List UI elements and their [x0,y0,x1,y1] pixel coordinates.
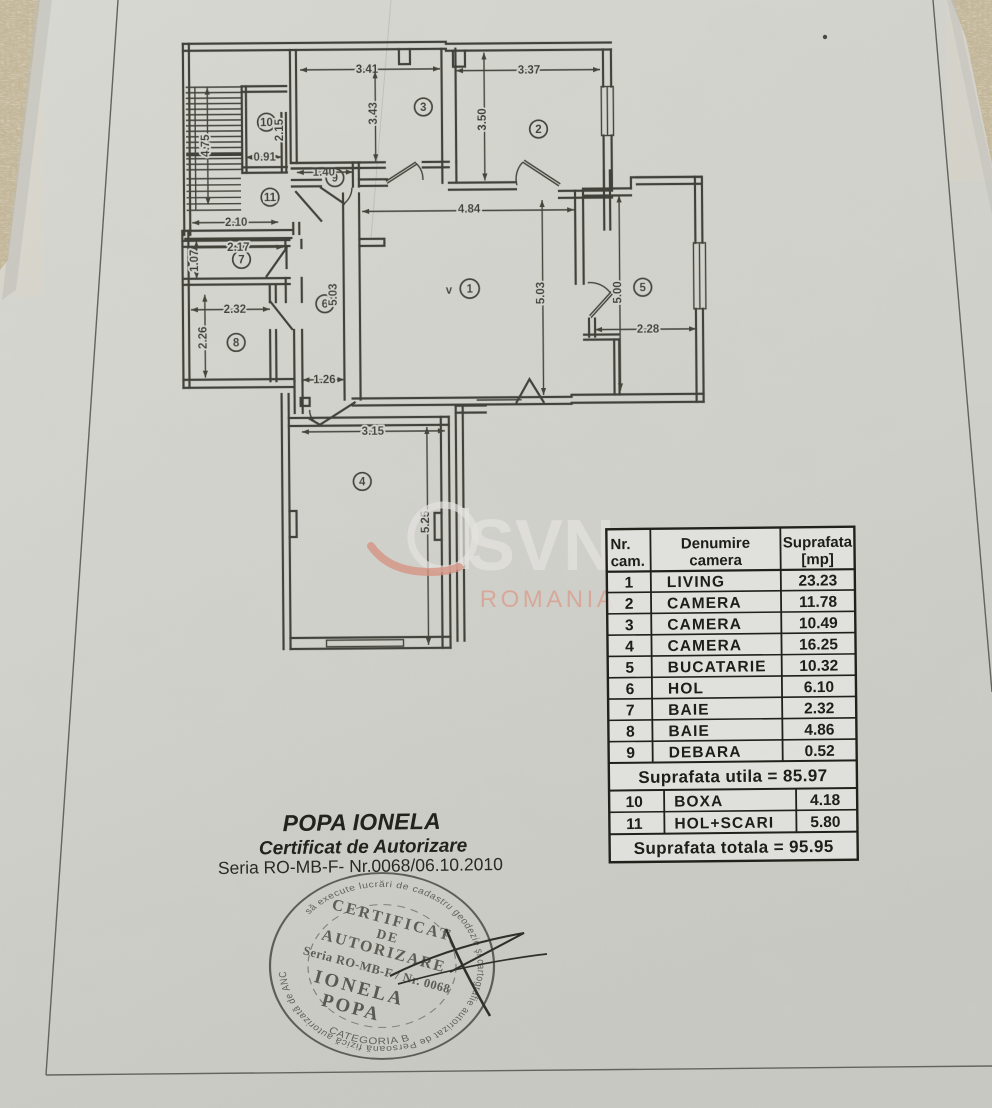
svg-text:10.32: 10.32 [799,658,838,675]
svg-text:6.10: 6.10 [804,679,834,696]
svg-text:BAIE: BAIE [668,723,710,740]
svg-text:10: 10 [625,794,642,811]
svg-text:HOL: HOL [668,680,704,697]
svg-text:Nr.: Nr. [610,536,630,553]
svg-text:16.25: 16.25 [799,636,838,653]
svg-text:BUCATARIE: BUCATARIE [668,658,767,676]
svg-text:2.32: 2.32 [804,700,834,717]
svg-text:4.86: 4.86 [804,722,835,739]
svg-text:camera: camera [689,552,742,570]
svg-text:BAIE: BAIE [668,702,710,719]
svg-text:LIVING: LIVING [667,574,725,592]
svg-text:7: 7 [626,702,635,719]
svg-text:23.23: 23.23 [798,572,837,589]
svg-text:8: 8 [626,724,635,741]
svg-text:DEBARA: DEBARA [669,744,742,762]
svg-text:0.52: 0.52 [804,743,834,760]
svg-text:4: 4 [625,638,634,655]
svg-text:9: 9 [626,745,635,762]
svg-text:HOL+SCARI: HOL+SCARI [674,815,774,833]
svg-text:11: 11 [626,816,643,833]
svg-text:4.18: 4.18 [810,792,841,809]
svg-text:10.49: 10.49 [799,615,838,632]
svg-text:CAMERA: CAMERA [667,637,742,655]
svg-text:POPA IONELA: POPA IONELA [283,808,441,836]
svg-text:Suprafata totala = 95.95: Suprafata totala = 95.95 [634,837,834,858]
svg-text:3: 3 [625,617,634,634]
svg-text:6: 6 [626,681,635,698]
svg-text:2: 2 [625,596,634,613]
svg-text:1: 1 [624,575,633,592]
svg-text:cam.: cam. [611,553,645,570]
svg-text:[mp]: [mp] [801,551,834,568]
svg-text:Denumire: Denumire [681,535,750,553]
svg-text:CAMERA: CAMERA [667,595,742,613]
svg-text:5.80: 5.80 [810,814,840,831]
svg-text:Suprafata utila = 85.97: Suprafata utila = 85.97 [638,766,827,787]
svg-text:CAMERA: CAMERA [667,616,742,634]
svg-text:5: 5 [625,660,634,677]
svg-text:11.78: 11.78 [799,594,837,611]
svg-text:Suprafata: Suprafata [783,534,853,552]
svg-text:BOXA: BOXA [674,793,723,811]
